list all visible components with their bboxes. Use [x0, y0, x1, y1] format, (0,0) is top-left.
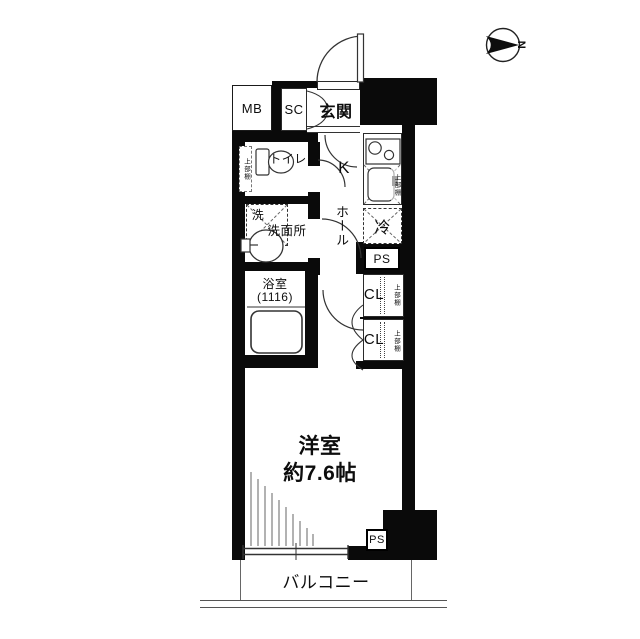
- wall-toilet-washroom: [232, 196, 320, 204]
- closet-lower-pole-line2: [384, 322, 385, 358]
- hall-label: ホール: [333, 192, 350, 260]
- closet-upper-shelf-label: 上部棚: [390, 277, 401, 313]
- wall-below-bath: [232, 355, 318, 368]
- balcony-outer-line-1: [200, 600, 447, 601]
- balcony-outer-line-2: [200, 607, 447, 608]
- closet-upper-fold-arc: [352, 305, 363, 340]
- wall-toilet-hall-upper: [308, 142, 320, 166]
- bathroom-size-label: (1116): [250, 290, 300, 304]
- toilet-label: トイレ: [268, 149, 308, 167]
- entrance-door-arc: [317, 36, 363, 82]
- shoe-closet-label: SC: [281, 88, 307, 131]
- balcony-window-icon: [243, 543, 348, 560]
- closet-lower-shelf-label: 上部棚: [390, 323, 401, 359]
- closet-lower-label: CL: [364, 329, 384, 349]
- pipe-space-top-label: PS: [364, 247, 400, 270]
- meter-box-label: MB: [232, 85, 272, 131]
- bathroom-label: 浴室: [253, 276, 297, 290]
- toilet-shelf-label: 上部棚: [239, 146, 252, 192]
- wall-below-closets: [356, 361, 415, 369]
- wall-bath-right: [305, 271, 318, 360]
- fridge-label: 冷: [363, 210, 402, 242]
- washer-label: 洗: [249, 206, 267, 222]
- main-room-size-label: 約7.6帖: [240, 459, 400, 485]
- entrance-door-leaf: [358, 34, 364, 82]
- kitchen-shelf-label: 上部棚: [391, 168, 401, 202]
- floor-plan-canvas: N MB SC 玄関 トイレ 上部棚 K ホール 洗 洗面所 上部棚 冷 PS …: [0, 0, 640, 639]
- washroom-label: 洗面所: [262, 221, 312, 237]
- wall-entrance-block: [360, 78, 437, 125]
- main-room-name-label: 洋室: [250, 432, 390, 458]
- entrance-label: 玄関: [312, 88, 360, 131]
- compass-north-label: N: [514, 38, 528, 52]
- closet-upper-pole-line2: [384, 277, 385, 314]
- closet-upper-label: CL: [364, 284, 384, 304]
- wall-bottom-right-block: [383, 510, 437, 560]
- pipe-space-bottom-label: PS: [366, 529, 388, 551]
- balcony-label: バルコニー: [240, 562, 412, 598]
- wall-mb-sc-divider: [272, 85, 281, 131]
- wall-washroom-bath: [232, 262, 318, 271]
- kitchen-label: K: [334, 158, 354, 178]
- room-door-arc: [323, 290, 363, 330]
